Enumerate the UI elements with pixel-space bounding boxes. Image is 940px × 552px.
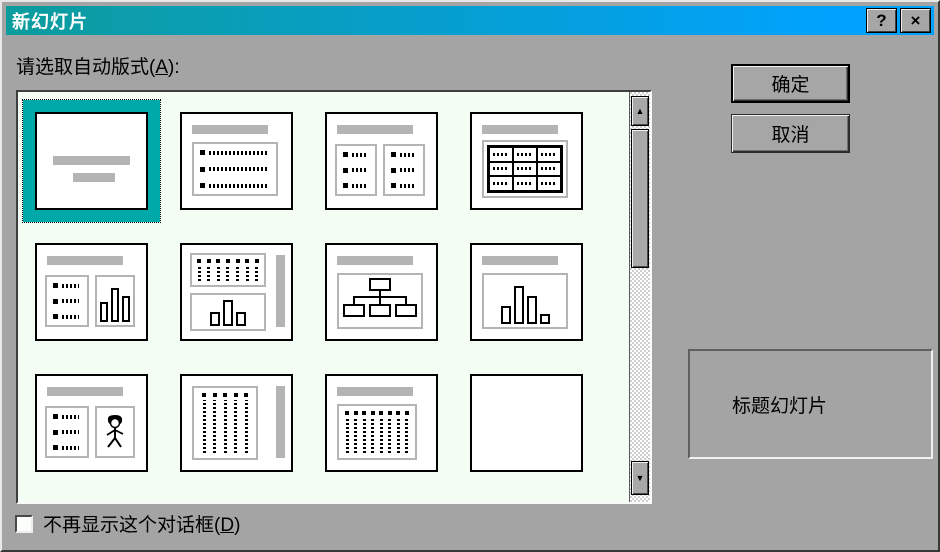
table-cell bbox=[537, 162, 561, 177]
scrollbar-thumb[interactable] bbox=[631, 129, 649, 268]
table-cell bbox=[513, 147, 537, 162]
new-slide-dialog: 新幻灯片 ? × 请选取自动版式(A): bbox=[0, 0, 940, 552]
layout-thumbnail-text-and-clip-art[interactable] bbox=[35, 374, 148, 472]
bullet-line bbox=[53, 430, 81, 435]
person-clipart-icon bbox=[102, 413, 128, 451]
vertical-line bbox=[362, 411, 366, 453]
vertical-line bbox=[388, 411, 392, 453]
vertical-line bbox=[223, 393, 227, 453]
vertical-line bbox=[197, 259, 201, 281]
vertical-line bbox=[202, 393, 206, 453]
vertical-text-lines bbox=[194, 388, 256, 458]
vertical-line bbox=[396, 411, 400, 453]
text-and-chart-layout-icon bbox=[35, 243, 148, 341]
organization-chart-layout-icon bbox=[325, 243, 438, 341]
mini-bar-chart bbox=[487, 286, 563, 324]
mini-table bbox=[487, 145, 563, 193]
body-placeholder bbox=[192, 142, 278, 196]
bar bbox=[501, 306, 511, 324]
table-cell bbox=[489, 162, 513, 177]
layout-thumbnail-chart[interactable] bbox=[470, 243, 583, 341]
bullet-line bbox=[200, 183, 270, 188]
vertical-line bbox=[245, 259, 249, 281]
help-icon: ? bbox=[876, 11, 886, 31]
ok-button[interactable]: 确定 bbox=[731, 64, 850, 103]
table-placeholder bbox=[482, 140, 568, 198]
subtitle-placeholder bbox=[73, 173, 115, 182]
layout-grid bbox=[18, 92, 629, 502]
layout-thumbnail-title-and-vertical-text[interactable] bbox=[325, 374, 438, 472]
bullet-line bbox=[391, 183, 417, 188]
chart-placeholder bbox=[190, 293, 266, 331]
bullet-line bbox=[343, 183, 369, 188]
scroll-up-button[interactable]: ▲ bbox=[631, 96, 649, 126]
scroll-up-icon: ▲ bbox=[636, 106, 645, 116]
vertical-text-placeholder bbox=[190, 253, 266, 287]
org-node bbox=[343, 304, 365, 317]
bar bbox=[122, 296, 130, 322]
layout-thumbnail-bulleted-list[interactable] bbox=[180, 112, 293, 210]
bar bbox=[527, 296, 537, 324]
table-cell bbox=[537, 176, 561, 191]
table-cell bbox=[513, 176, 537, 191]
layout-listbox: ▲ ▼ bbox=[16, 90, 652, 504]
layout-scrollbar[interactable]: ▲ ▼ bbox=[629, 92, 650, 502]
org-node bbox=[395, 304, 417, 317]
title-placeholder bbox=[337, 387, 413, 396]
help-button[interactable]: ? bbox=[866, 8, 897, 33]
bulleted-list-layout-icon bbox=[180, 112, 293, 210]
bar bbox=[223, 300, 233, 326]
dont-show-again-row: 不再显示这个对话框(D) bbox=[15, 510, 240, 537]
prompt-text: 请选取自动版式( bbox=[16, 57, 155, 78]
org-node bbox=[369, 278, 391, 291]
layout-description-text: 标题幻灯片 bbox=[732, 391, 827, 418]
dialog-title: 新幻灯片 bbox=[12, 8, 88, 34]
close-icon: × bbox=[911, 11, 921, 31]
layout-thumbnail-text-and-chart[interactable] bbox=[35, 243, 148, 341]
layout-thumbnail-table[interactable] bbox=[470, 112, 583, 210]
checkbox-accelerator: D bbox=[220, 515, 234, 536]
vertical-line bbox=[213, 393, 217, 453]
vertical-line bbox=[354, 411, 358, 453]
layout-thumbnail-title-slide[interactable] bbox=[35, 112, 148, 210]
layout-thumbnail-two-column-text[interactable] bbox=[325, 112, 438, 210]
chart-placeholder bbox=[95, 275, 135, 327]
vertical-text-lines bbox=[339, 406, 415, 458]
bullet-line bbox=[343, 152, 369, 157]
bar bbox=[210, 312, 220, 326]
prompt-label: 请选取自动版式(A): bbox=[16, 52, 180, 79]
title-placeholder bbox=[47, 387, 123, 396]
table-cell bbox=[537, 147, 561, 162]
table-cell bbox=[489, 176, 513, 191]
title-and-vertical-text-layout-icon bbox=[325, 374, 438, 472]
vertical-title-placeholder bbox=[276, 386, 285, 458]
left-text-placeholder bbox=[335, 144, 377, 196]
checkbox-text: 不再显示这个对话框( bbox=[43, 515, 220, 536]
prompt-text-end: ): bbox=[168, 57, 180, 78]
bar bbox=[540, 314, 550, 324]
vertical-line bbox=[226, 259, 230, 281]
cancel-button[interactable]: 取消 bbox=[731, 114, 850, 153]
title-placeholder bbox=[482, 125, 558, 134]
layout-thumbnail-vertical-text-and-chart[interactable] bbox=[180, 243, 293, 341]
bullet-line bbox=[53, 445, 81, 450]
org-node bbox=[369, 304, 391, 317]
org-chart-placeholder bbox=[337, 273, 423, 329]
title-placeholder bbox=[47, 256, 123, 265]
dont-show-again-label: 不再显示这个对话框(D) bbox=[43, 510, 240, 537]
bullet-line bbox=[391, 168, 417, 173]
blank-layout-icon bbox=[470, 374, 583, 472]
vertical-line bbox=[371, 411, 375, 453]
vertical-line bbox=[234, 393, 238, 453]
table-layout-icon bbox=[470, 112, 583, 210]
vertical-text-lines bbox=[192, 255, 264, 285]
bullet-line bbox=[53, 299, 81, 304]
scroll-down-icon: ▼ bbox=[636, 473, 645, 483]
dont-show-again-checkbox[interactable] bbox=[15, 515, 33, 533]
text-placeholder bbox=[45, 275, 89, 327]
bullet-line bbox=[200, 150, 270, 155]
layout-thumbnail-blank[interactable] bbox=[470, 374, 583, 472]
title-placeholder bbox=[337, 256, 413, 265]
vertical-text-layout-icon bbox=[180, 374, 293, 472]
vertical-line bbox=[379, 411, 383, 453]
prompt-accelerator: A bbox=[155, 57, 168, 78]
text-placeholder bbox=[45, 406, 89, 458]
bullet-line bbox=[53, 414, 81, 419]
scroll-down-button[interactable]: ▼ bbox=[631, 461, 649, 495]
vertical-line bbox=[236, 259, 240, 281]
bar bbox=[236, 312, 246, 326]
title-placeholder bbox=[53, 156, 130, 165]
bullet-line bbox=[200, 167, 270, 172]
bullet-line bbox=[343, 168, 369, 173]
vertical-line bbox=[405, 411, 409, 453]
mini-bar-chart bbox=[195, 300, 261, 326]
two-column-text-layout-icon bbox=[325, 112, 438, 210]
bullet-line bbox=[391, 152, 417, 157]
vertical-line bbox=[207, 259, 211, 281]
vertical-text-placeholder bbox=[192, 386, 258, 460]
close-button[interactable]: × bbox=[900, 8, 931, 33]
vertical-line bbox=[244, 393, 248, 453]
title-placeholder bbox=[482, 256, 558, 265]
layout-thumbnail-organization-chart[interactable] bbox=[325, 243, 438, 341]
vertical-text-and-chart-layout-icon bbox=[180, 243, 293, 341]
vertical-line bbox=[345, 411, 349, 453]
bar bbox=[100, 302, 108, 322]
clip-art-placeholder bbox=[95, 406, 135, 458]
layout-description-box: 标题幻灯片 bbox=[688, 349, 933, 459]
title-slide-layout-icon bbox=[35, 112, 148, 210]
vertical-text-placeholder bbox=[337, 404, 417, 460]
chart-layout-icon bbox=[470, 243, 583, 341]
layout-thumbnail-vertical-text[interactable] bbox=[180, 374, 293, 472]
chart-placeholder bbox=[482, 273, 568, 329]
text-and-clip-art-layout-icon bbox=[35, 374, 148, 472]
title-placeholder bbox=[337, 125, 413, 134]
bar bbox=[111, 288, 119, 322]
vertical-line bbox=[255, 259, 259, 281]
table-cell bbox=[489, 147, 513, 162]
vertical-title-placeholder bbox=[276, 255, 285, 327]
bullet-line bbox=[53, 314, 81, 319]
vertical-line bbox=[216, 259, 220, 281]
title-bar-buttons: ? × bbox=[866, 8, 931, 33]
title-placeholder bbox=[192, 125, 268, 134]
checkbox-text-end: ) bbox=[234, 515, 240, 536]
right-text-placeholder bbox=[383, 144, 425, 196]
table-cell bbox=[513, 162, 537, 177]
title-bar[interactable]: 新幻灯片 ? × bbox=[6, 6, 934, 35]
bar bbox=[514, 286, 524, 324]
mini-bar-chart bbox=[100, 288, 130, 322]
bullet-line bbox=[53, 283, 81, 288]
